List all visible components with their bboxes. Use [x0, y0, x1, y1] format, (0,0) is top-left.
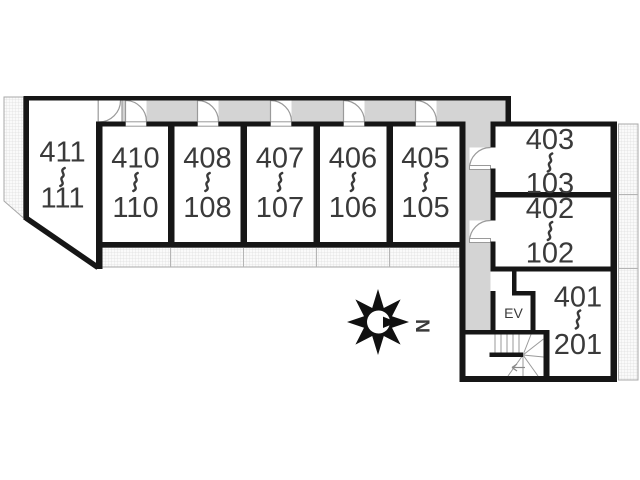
svg-text:107: 107 — [256, 192, 304, 224]
svg-text:407: 407 — [256, 143, 304, 175]
svg-text:106: 106 — [329, 192, 377, 224]
svg-text:105: 105 — [401, 192, 449, 224]
svg-text:110: 110 — [112, 192, 158, 224]
svg-text:108: 108 — [183, 192, 231, 224]
svg-text:402: 402 — [526, 193, 574, 225]
svg-text:408: 408 — [183, 143, 231, 175]
svg-text:102: 102 — [526, 238, 574, 270]
svg-text:410: 410 — [111, 143, 159, 175]
svg-text:N: N — [411, 319, 432, 333]
svg-text:403: 403 — [526, 124, 574, 156]
svg-text:406: 406 — [329, 143, 377, 175]
svg-text:411: 411 — [39, 137, 85, 169]
svg-text:401: 401 — [554, 282, 602, 314]
svg-text:EV: EV — [504, 305, 523, 321]
svg-text:405: 405 — [401, 143, 449, 175]
svg-text:111: 111 — [40, 183, 84, 215]
svg-text:201: 201 — [554, 329, 602, 361]
